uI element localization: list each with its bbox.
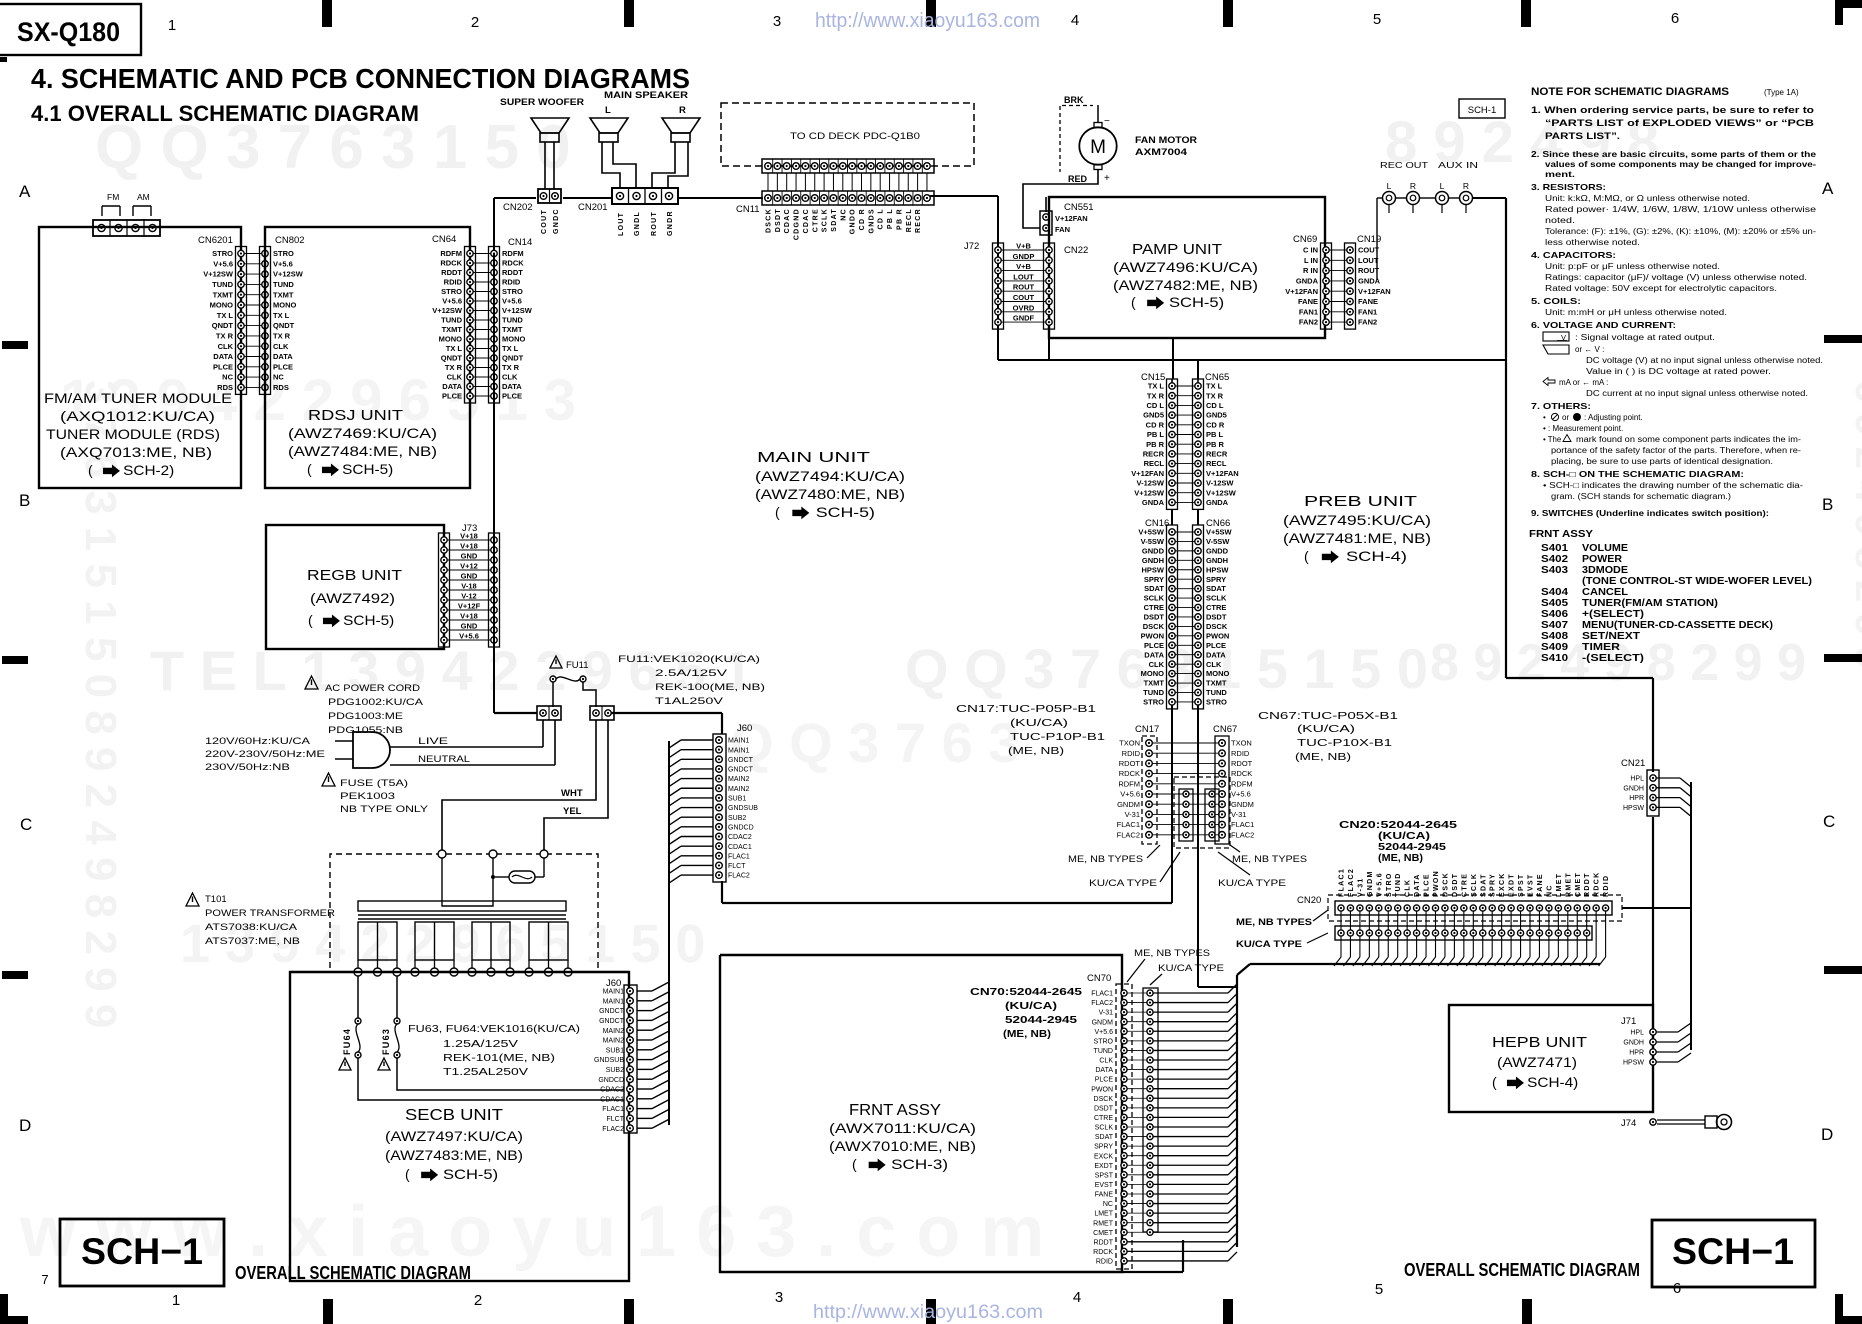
- svg-text:LIVE: LIVE: [418, 736, 448, 747]
- svg-text:CLK: CLK: [502, 373, 518, 382]
- svg-text:(KU/CA): (KU/CA): [1005, 1001, 1057, 1012]
- svg-text:GNDF: GNDF: [1013, 314, 1035, 323]
- svg-text:DSCK: DSCK: [766, 208, 773, 233]
- svg-text:52044-2945: 52044-2945: [1378, 842, 1447, 853]
- svg-text:5: 5: [1373, 11, 1381, 28]
- svg-text:ME, NB TYPES: ME, NB TYPES: [1068, 854, 1143, 864]
- svg-text:TXMT: TXMT: [502, 325, 523, 334]
- svg-text:PWON: PWON: [1206, 631, 1229, 640]
- svg-text:GNDD: GNDD: [1142, 546, 1165, 555]
- svg-text:CTRE: CTRE: [1206, 603, 1226, 612]
- svg-text:PB R: PB R: [896, 208, 903, 230]
- svg-text:GNDH: GNDH: [1142, 556, 1164, 565]
- svg-text:GNDCT: GNDCT: [599, 1008, 625, 1015]
- svg-text:Value in ( ) is DC voltage: Value in ( ) is DC voltage at rated powe…: [1586, 367, 1771, 376]
- svg-text:FLAC1: FLAC1: [1339, 868, 1346, 897]
- svg-text:MAIN2: MAIN2: [728, 786, 750, 793]
- svg-text:V-31: V-31: [1099, 1010, 1114, 1017]
- svg-text:3 7 6 3 1 5 1 5 0 8 9 2 4 9 8: 3 7 6 3 1 5 1 5 0 8 9 2 4 9 8 2 9 9: [76, 380, 125, 1028]
- svg-text:REK-100(ME, NB): REK-100(ME, NB): [655, 682, 765, 693]
- svg-text:NOTE FOR SCHEMATIC DIAGRAMS: NOTE FOR SCHEMATIC DIAGRAMS: [1531, 86, 1729, 98]
- svg-text:52044-2945: 52044-2945: [1005, 1015, 1078, 1026]
- svg-text:SUB2: SUB2: [728, 815, 746, 822]
- svg-text:RDSJ UNIT: RDSJ UNIT: [308, 407, 403, 424]
- svg-text:Tolerance: (F): ±1%, (G): ±2%,: Tolerance: (F): ±1%, (G): ±2%, (K): ±10%…: [1545, 227, 1816, 236]
- svg-text:PDG1003:ME: PDG1003:ME: [328, 711, 403, 722]
- svg-text:YEL: YEL: [563, 806, 582, 817]
- svg-text:•: •: [1543, 413, 1546, 422]
- svg-text:S407: S407: [1541, 620, 1569, 631]
- svg-text:(AWZ7484:ME, NB): (AWZ7484:ME, NB): [288, 443, 437, 459]
- svg-text:(ME, NB): (ME, NB): [1295, 752, 1351, 763]
- svg-text:CN6201: CN6201: [198, 235, 233, 246]
- svg-text:TX R: TX R: [1206, 391, 1224, 400]
- svg-text:SPST: SPST: [1095, 1172, 1114, 1179]
- svg-text:(AWZ7495:KU/CA): (AWZ7495:KU/CA): [1283, 512, 1431, 528]
- svg-text:STRO: STRO: [441, 287, 462, 296]
- svg-text:COUT: COUT: [541, 209, 548, 234]
- svg-text:CD L: CD L: [1147, 401, 1165, 410]
- svg-text:RDS: RDS: [273, 383, 289, 392]
- svg-text:NC: NC: [222, 373, 233, 382]
- svg-text:6 9 2 4 9 8 2 9 9: 6 9 2 4 9 8 2 9 9: [1847, 380, 1862, 669]
- svg-text:DSDT: DSDT: [1094, 1105, 1114, 1112]
- svg-text:(Type 1A): (Type 1A): [1764, 88, 1799, 97]
- svg-text:REK-101(ME, NB): REK-101(ME, NB): [443, 1053, 555, 1064]
- svg-text:TX L: TX L: [502, 344, 519, 353]
- svg-text:GNDM: GNDM: [1092, 1019, 1114, 1026]
- svg-text:CMET: CMET: [1575, 872, 1582, 897]
- svg-text:placing, be sure to use parts: placing, be sure to use parts of identic…: [1551, 457, 1773, 466]
- svg-text:230V/50Hz:NB: 230V/50Hz:NB: [205, 762, 290, 773]
- svg-text:(AXQ1012:KU/CA): (AXQ1012:KU/CA): [60, 408, 215, 424]
- svg-text:SDAT: SDAT: [1144, 584, 1164, 593]
- svg-text:STRO: STRO: [212, 249, 233, 258]
- svg-text:(AWX7011:KU/CA): (AWX7011:KU/CA): [829, 1120, 976, 1136]
- svg-text:FAN1: FAN1: [1299, 307, 1318, 316]
- svg-text:SDAT: SDAT: [1095, 1134, 1114, 1141]
- svg-text:V+12FAN: V+12FAN: [1285, 287, 1318, 296]
- svg-text:J60: J60: [606, 978, 621, 989]
- svg-text:V+5.6: V+5.6: [213, 259, 233, 268]
- svg-text:ATS7037:ME, NB: ATS7037:ME, NB: [205, 936, 300, 947]
- svg-text:MONO: MONO: [210, 301, 233, 310]
- svg-text:GNDSUB: GNDSUB: [728, 805, 758, 812]
- svg-text:A: A: [19, 182, 31, 201]
- svg-text:GNDD: GNDD: [1206, 546, 1229, 555]
- svg-text:SPRY: SPRY: [1490, 873, 1497, 897]
- svg-text:FLAC1: FLAC1: [1231, 820, 1254, 829]
- svg-text:REGB UNIT: REGB UNIT: [307, 567, 402, 584]
- svg-text:(AWZ7481:ME, NB): (AWZ7481:ME, NB): [1283, 530, 1431, 546]
- svg-text:FM/AM TUNER MODULE: FM/AM TUNER MODULE: [44, 390, 232, 406]
- svg-text:TX R: TX R: [273, 332, 291, 341]
- svg-text:STRO: STRO: [1386, 872, 1393, 897]
- svg-text:CN17: CN17: [1135, 724, 1159, 735]
- svg-text:J72: J72: [964, 241, 979, 252]
- svg-text:or: or: [1562, 413, 1569, 422]
- svg-text:CN17:TUC-P05P-B1: CN17:TUC-P05P-B1: [956, 704, 1097, 715]
- svg-text:NEUTRAL: NEUTRAL: [418, 754, 470, 765]
- svg-text:V-5SW: V-5SW: [1141, 537, 1165, 546]
- svg-text:PARTS LIST”.: PARTS LIST”.: [1545, 131, 1620, 142]
- svg-text:SDAT: SDAT: [1480, 873, 1487, 897]
- svg-text:CD R: CD R: [859, 208, 866, 230]
- svg-text:MENU(TUNER-CD-CASSETTE DECK): MENU(TUNER-CD-CASSETTE DECK): [1582, 620, 1773, 631]
- svg-text:AUX IN: AUX IN: [1438, 160, 1478, 170]
- svg-text:CN64: CN64: [432, 234, 456, 245]
- svg-text:STRO: STRO: [1143, 698, 1164, 707]
- svg-text:PLCE: PLCE: [1424, 873, 1431, 897]
- svg-text:(: (: [405, 1166, 410, 1182]
- svg-text:4.1 OVERALL SCHEMATIC DIAGRAM: 4.1 OVERALL SCHEMATIC DIAGRAM: [31, 101, 419, 126]
- svg-text:3: 3: [775, 1289, 783, 1306]
- svg-text:CN201: CN201: [578, 202, 608, 213]
- svg-text:PLCE: PLCE: [1095, 1077, 1114, 1084]
- svg-text:RDFM: RDFM: [1231, 779, 1253, 788]
- svg-text:RDCK: RDCK: [1093, 1249, 1113, 1256]
- svg-text:SCH-4): SCH-4): [1527, 1074, 1578, 1090]
- svg-text:FANE: FANE: [1358, 297, 1378, 306]
- svg-text:RDID: RDID: [1231, 749, 1250, 758]
- svg-text:HPSW: HPSW: [1142, 565, 1165, 574]
- svg-text:SCLK: SCLK: [1206, 594, 1227, 603]
- svg-text:RDDT: RDDT: [1584, 872, 1591, 897]
- svg-text:MAIN2: MAIN2: [603, 1038, 625, 1045]
- svg-text:AXM7004: AXM7004: [1135, 147, 1187, 157]
- svg-text:PLCE: PLCE: [442, 392, 462, 401]
- svg-text:NC: NC: [273, 373, 284, 382]
- svg-text:PLCE: PLCE: [1206, 641, 1226, 650]
- svg-text:RDID: RDID: [502, 278, 521, 287]
- svg-text:CTRE: CTRE: [1094, 1115, 1113, 1122]
- svg-text:CLK: CLK: [1206, 660, 1222, 669]
- svg-text:EVST: EVST: [1095, 1182, 1114, 1189]
- svg-text:S403: S403: [1541, 565, 1569, 576]
- svg-text:(ME, NB): (ME, NB): [1008, 746, 1064, 757]
- svg-text:TUNER(FM/AM STATION): TUNER(FM/AM STATION): [1582, 598, 1718, 609]
- svg-text:TX R: TX R: [216, 332, 234, 341]
- svg-text:V+5.6: V+5.6: [502, 297, 522, 306]
- svg-text:CN67: CN67: [1213, 724, 1237, 735]
- svg-text:GNDA: GNDA: [1296, 277, 1319, 286]
- svg-text:NC: NC: [1546, 884, 1553, 897]
- svg-text:BRK: BRK: [1064, 95, 1084, 105]
- svg-text:mA or ← mA :: mA or ← mA :: [1559, 378, 1608, 387]
- svg-text:TUND: TUND: [1206, 688, 1227, 697]
- svg-text:(AWZ7482:ME, NB): (AWZ7482:ME, NB): [1113, 277, 1258, 293]
- svg-text:GNDA: GNDA: [1142, 498, 1165, 507]
- svg-text:GNDH: GNDH: [1623, 785, 1644, 792]
- svg-text:2.5A/125V: 2.5A/125V: [655, 668, 728, 679]
- svg-text:(KU/CA): (KU/CA): [1010, 718, 1068, 729]
- svg-text:GNDO: GNDO: [850, 208, 857, 234]
- svg-text:FANE: FANE: [1298, 297, 1318, 306]
- svg-text:Ratings: capacitor (μF)/ volta: Ratings: capacitor (μF)/ voltage (V) unl…: [1545, 273, 1807, 282]
- svg-text:MONO: MONO: [502, 335, 525, 344]
- svg-text:RDS: RDS: [217, 383, 233, 392]
- svg-text:1. When ordering service parts: 1. When ordering service parts, be sure …: [1531, 105, 1814, 116]
- svg-text:PWON: PWON: [1141, 631, 1164, 640]
- svg-text:3: 3: [773, 13, 781, 30]
- svg-text:TIMER: TIMER: [1582, 642, 1621, 653]
- svg-text:B: B: [19, 491, 30, 510]
- svg-text:FLAC1: FLAC1: [1117, 820, 1140, 829]
- svg-text:(: (: [1131, 294, 1136, 310]
- svg-text:FU63: FU63: [381, 1028, 391, 1055]
- svg-text:TX L: TX L: [1148, 382, 1165, 391]
- svg-text:CTRE: CTRE: [1144, 603, 1164, 612]
- svg-text:4. CAPACITORS:: 4. CAPACITORS:: [1531, 250, 1616, 260]
- svg-text:RECR: RECR: [1206, 450, 1228, 459]
- svg-text:TX R: TX R: [502, 363, 520, 372]
- svg-text:EXCK: EXCK: [1499, 872, 1506, 897]
- svg-text:R: R: [1410, 181, 1416, 191]
- svg-text:PLCE: PLCE: [213, 362, 233, 371]
- svg-text:TUND: TUND: [273, 280, 294, 289]
- svg-text:V+B: V+B: [1016, 242, 1031, 251]
- svg-text:GND5: GND5: [1143, 411, 1164, 420]
- svg-text:DATA: DATA: [1095, 1067, 1113, 1074]
- svg-text:DATA: DATA: [502, 382, 522, 391]
- svg-text:V+5SW: V+5SW: [1206, 528, 1233, 537]
- svg-text:+(SELECT): +(SELECT): [1582, 609, 1644, 620]
- svg-text:(: (: [852, 1156, 857, 1172]
- svg-text:FM: FM: [107, 192, 119, 202]
- svg-text:SUB1: SUB1: [728, 796, 746, 803]
- svg-text:C IN: C IN: [1303, 246, 1318, 255]
- svg-text:RDCK: RDCK: [502, 259, 524, 268]
- svg-text:RDOT: RDOT: [1119, 759, 1141, 768]
- svg-text:SCH−1: SCH−1: [81, 1231, 203, 1272]
- svg-text:(: (: [1492, 1074, 1497, 1090]
- svg-text:RDFM: RDFM: [1118, 779, 1140, 788]
- svg-text:RDID: RDID: [444, 278, 463, 287]
- svg-text:PB L: PB L: [887, 208, 894, 229]
- svg-text:SPRY: SPRY: [1144, 575, 1164, 584]
- svg-text:7. OTHERS:: 7. OTHERS:: [1531, 401, 1591, 411]
- svg-text:DATA: DATA: [213, 352, 233, 361]
- svg-text:GNDM: GNDM: [1367, 870, 1374, 897]
- svg-text:TUND: TUND: [1143, 688, 1164, 697]
- svg-text:V-12: V-12: [461, 592, 476, 601]
- svg-text:CDAC1: CDAC1: [600, 1096, 624, 1103]
- svg-text:MAIN2: MAIN2: [603, 1028, 625, 1035]
- svg-text:KU/CA TYPE: KU/CA TYPE: [1158, 963, 1224, 973]
- svg-text:HPL: HPL: [1630, 776, 1644, 783]
- svg-text:TUND: TUND: [502, 316, 523, 325]
- svg-text:(ME, NB): (ME, NB): [1003, 1029, 1051, 1040]
- svg-text:AM: AM: [137, 192, 150, 202]
- svg-text:DATA: DATA: [1144, 650, 1164, 659]
- svg-text:GND: GND: [461, 552, 478, 561]
- svg-text:GNDCT: GNDCT: [599, 1018, 625, 1025]
- svg-text:CLK: CLK: [1099, 1058, 1113, 1065]
- svg-text:• : Measurement poin: • : Measurement point.: [1543, 424, 1623, 433]
- svg-text:V-12SW: V-12SW: [1206, 479, 1234, 488]
- svg-text:V+12FAN: V+12FAN: [1055, 214, 1088, 223]
- svg-text:QNDT: QNDT: [212, 321, 234, 330]
- svg-text:RDDT: RDDT: [441, 268, 462, 277]
- svg-text:GNDCT: GNDCT: [728, 767, 754, 774]
- svg-text:3DMODE: 3DMODE: [1582, 565, 1628, 576]
- svg-text:RECL: RECL: [1206, 459, 1227, 468]
- svg-text:CDAC1: CDAC1: [728, 844, 752, 851]
- svg-text:V+5.6: V+5.6: [1120, 790, 1140, 799]
- svg-text:L IN: L IN: [1304, 256, 1318, 265]
- svg-text:DSCK: DSCK: [1442, 872, 1449, 897]
- svg-text:MAIN2: MAIN2: [728, 776, 750, 783]
- svg-text:V-18: V-18: [461, 582, 476, 591]
- svg-text:KU/CA TYPE: KU/CA TYPE: [1218, 878, 1286, 888]
- svg-text:GND: GND: [461, 572, 478, 581]
- svg-text:6: 6: [1673, 1280, 1681, 1297]
- svg-text:RDID: RDID: [1603, 875, 1610, 897]
- svg-text:HEPB UNIT: HEPB UNIT: [1492, 1034, 1587, 1051]
- svg-text:PLCE: PLCE: [502, 392, 522, 401]
- svg-text:2: 2: [474, 1292, 482, 1309]
- svg-text:FLAC2: FLAC2: [1231, 830, 1254, 839]
- svg-text:LOUT: LOUT: [1358, 256, 1379, 265]
- svg-text:GND5: GND5: [1206, 411, 1227, 420]
- svg-text:S408: S408: [1541, 631, 1569, 642]
- svg-text:GNDCD: GNDCD: [598, 1077, 624, 1084]
- svg-text:(TONE CONTROL-ST WIDE-WOFER LE: (TONE CONTROL-ST WIDE-WOFER LEVEL): [1582, 576, 1812, 587]
- svg-text:DATA: DATA: [442, 382, 462, 391]
- svg-text:V+5SW: V+5SW: [1138, 528, 1165, 537]
- svg-text:OVERALL SCHEMATIC DIAGRAM: OVERALL SCHEMATIC DIAGRAM: [1404, 1260, 1640, 1280]
- svg-text:PAMP UNIT: PAMP UNIT: [1132, 241, 1222, 258]
- svg-text:(KU/CA): (KU/CA): [1378, 831, 1430, 842]
- svg-text:DC current at no input signal: DC current at no input signal unless oth…: [1586, 389, 1808, 398]
- svg-text:RDDT: RDDT: [502, 268, 523, 277]
- svg-text:V+12SW: V+12SW: [432, 306, 463, 315]
- svg-text:FAN1: FAN1: [1358, 307, 1377, 316]
- svg-text:TX L: TX L: [217, 311, 234, 320]
- svg-text:HPR: HPR: [1629, 1050, 1644, 1057]
- svg-text:(AWZ7496:KU/CA): (AWZ7496:KU/CA): [1113, 259, 1258, 275]
- svg-text:: Adjusting point.: : Adjusting point.: [1584, 413, 1643, 422]
- svg-text:L: L: [605, 105, 611, 116]
- svg-text:HPSW: HPSW: [1623, 805, 1644, 812]
- svg-text:TUC-P10X-B1: TUC-P10X-B1: [1297, 738, 1393, 749]
- svg-text:RMET: RMET: [1565, 872, 1572, 897]
- svg-text:RDOT: RDOT: [1231, 759, 1253, 768]
- svg-text:MONO: MONO: [1141, 669, 1164, 678]
- svg-text:S402: S402: [1541, 554, 1569, 565]
- svg-text:FAN MOTOR: FAN MOTOR: [1135, 135, 1198, 145]
- svg-text:S405: S405: [1541, 598, 1569, 609]
- svg-text:portance of the safety factor: portance of the safety factor of the par…: [1551, 446, 1801, 455]
- svg-text:SUB1: SUB1: [606, 1047, 624, 1054]
- svg-text:V+18: V+18: [460, 532, 478, 541]
- svg-text:less otherwise noted.: less otherwise noted.: [1545, 238, 1640, 247]
- svg-text:(AWX7010:ME, NB): (AWX7010:ME, NB): [829, 1138, 976, 1154]
- svg-text:ment.: ment.: [1545, 170, 1575, 179]
- svg-text:TUC-P10P-B1: TUC-P10P-B1: [1010, 732, 1106, 743]
- svg-text:KU/CA TYPE: KU/CA TYPE: [1089, 878, 1157, 888]
- svg-text:KU/CA TYPE: KU/CA TYPE: [1236, 939, 1302, 949]
- svg-text:SCLK: SCLK: [1095, 1125, 1114, 1132]
- svg-text:CN11: CN11: [736, 204, 760, 215]
- svg-text:FAN2: FAN2: [1358, 318, 1377, 327]
- svg-text:FLAC2: FLAC2: [728, 873, 750, 880]
- svg-text:PDG1002:KU/CA: PDG1002:KU/CA: [328, 697, 424, 708]
- svg-text:REC OUT: REC OUT: [1380, 160, 1428, 170]
- svg-text:SCH-5): SCH-5): [343, 612, 394, 628]
- svg-text:NB TYPE ONLY: NB TYPE ONLY: [340, 804, 429, 815]
- svg-text:V-31: V-31: [1357, 877, 1364, 897]
- svg-text:OVERALL SCHEMATIC DIAGRAM: OVERALL SCHEMATIC DIAGRAM: [235, 1263, 471, 1283]
- svg-text:CN14: CN14: [508, 237, 532, 248]
- svg-text:M: M: [1090, 137, 1106, 158]
- svg-text:VOLUME: VOLUME: [1582, 543, 1628, 554]
- svg-text:FAN2: FAN2: [1299, 318, 1318, 327]
- svg-text:http://www.xiaoyu163.com: http://www.xiaoyu163.com: [813, 1302, 1043, 1323]
- svg-text:GNDP: GNDP: [1013, 252, 1035, 261]
- svg-text:MAIN1: MAIN1: [728, 738, 750, 745]
- svg-text:GNDM: GNDM: [1117, 800, 1140, 809]
- svg-text:DSDT: DSDT: [1206, 613, 1227, 622]
- svg-text:CANCEL: CANCEL: [1582, 587, 1628, 598]
- svg-text:D: D: [1821, 1125, 1833, 1144]
- svg-text:V+5.6: V+5.6: [273, 259, 293, 268]
- svg-text:S406: S406: [1541, 609, 1569, 620]
- svg-text:CLK: CLK: [273, 342, 289, 351]
- svg-text:(AWZ7483:ME, NB): (AWZ7483:ME, NB): [385, 1147, 523, 1163]
- svg-text:SCLK: SCLK: [822, 208, 829, 232]
- svg-text:GNDL: GNDL: [634, 211, 641, 236]
- svg-text:2: 2: [471, 14, 479, 31]
- svg-text:V+12FAN: V+12FAN: [1206, 469, 1239, 478]
- svg-text:TXON: TXON: [1119, 739, 1140, 748]
- svg-text:GNDR: GNDR: [667, 210, 674, 236]
- svg-text:RDCK: RDCK: [1119, 769, 1140, 778]
- svg-text:CLK: CLK: [1405, 879, 1412, 897]
- svg-text:SCH-1: SCH-1: [1468, 105, 1497, 116]
- svg-text:SCLK: SCLK: [1144, 594, 1165, 603]
- svg-text:6. VOLTAGE AND CURRENT:: 6. VOLTAGE AND CURRENT:: [1531, 320, 1676, 330]
- svg-text:GNDM: GNDM: [1231, 800, 1254, 809]
- svg-text:CDGND: CDGND: [794, 208, 801, 240]
- svg-text:AC POWER CORD: AC POWER CORD: [325, 683, 420, 694]
- svg-text:J60: J60: [737, 723, 752, 734]
- svg-text:HPSW: HPSW: [1206, 565, 1229, 574]
- svg-text:or ← V :: or ← V :: [1575, 345, 1604, 354]
- svg-text:WHT: WHT: [561, 788, 583, 799]
- svg-text:2. Since these are basic circu: 2. Since these are basic circuits, some …: [1531, 150, 1817, 159]
- svg-text:CMET: CMET: [1093, 1230, 1114, 1237]
- svg-text:SDAT: SDAT: [831, 208, 838, 232]
- svg-text:LOUT: LOUT: [1013, 272, 1034, 281]
- svg-text:1: 1: [172, 1292, 180, 1309]
- svg-text:LMET: LMET: [1556, 873, 1563, 897]
- svg-text:R: R: [1463, 181, 1469, 191]
- svg-text:5. COILS:: 5. COILS:: [1531, 296, 1581, 306]
- svg-text:(KU/CA): (KU/CA): [1297, 724, 1355, 735]
- svg-text:S410: S410: [1541, 653, 1569, 664]
- svg-text:RECL: RECL: [1144, 459, 1165, 468]
- svg-text:(AXQ7013:ME, NB): (AXQ7013:ME, NB): [60, 444, 212, 460]
- svg-text:SDAT: SDAT: [1206, 584, 1226, 593]
- svg-text:QNDT: QNDT: [273, 321, 295, 330]
- svg-text:EXDT: EXDT: [1094, 1163, 1113, 1170]
- svg-text:CLK: CLK: [1149, 660, 1165, 669]
- svg-text:MONO: MONO: [1206, 669, 1229, 678]
- svg-text:MAIN SPEAKER: MAIN SPEAKER: [604, 90, 688, 101]
- svg-text:+: +: [1104, 173, 1110, 184]
- svg-text:LMET: LMET: [1094, 1211, 1113, 1218]
